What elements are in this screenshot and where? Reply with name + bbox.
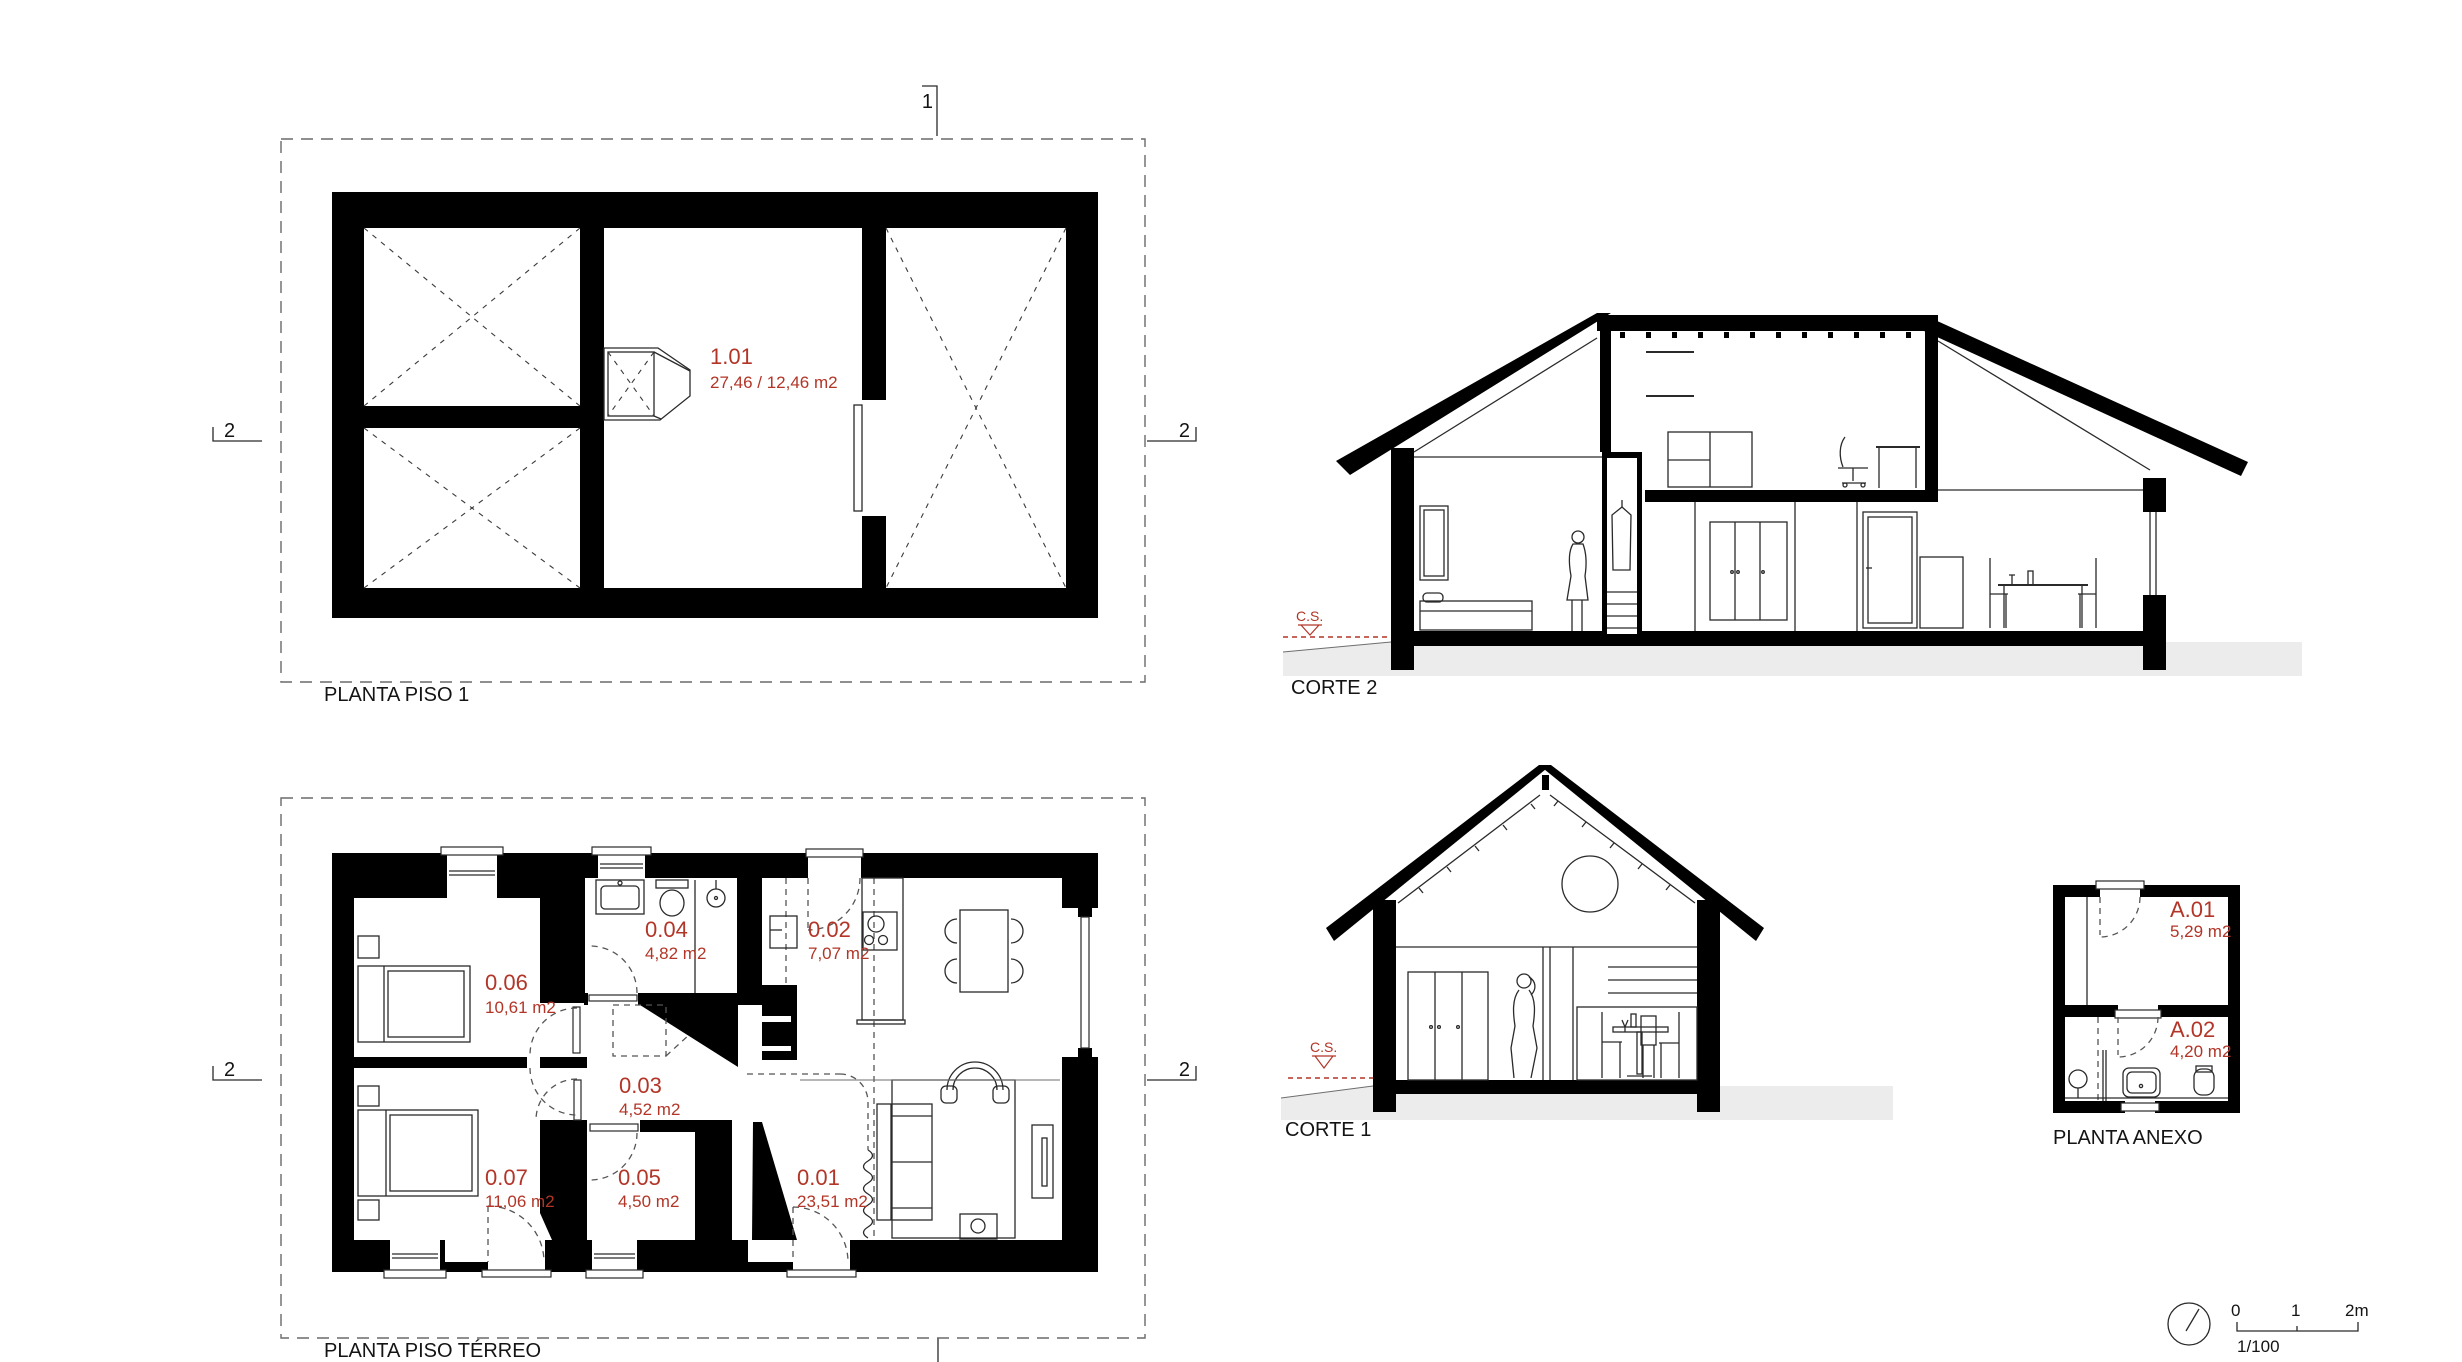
round-window bbox=[1562, 856, 1618, 912]
scale-two: 2m bbox=[2345, 1301, 2369, 1320]
room-006-number: 0.06 bbox=[485, 970, 528, 995]
sofa bbox=[877, 1104, 932, 1220]
cut2-left-bottom-label: 2 bbox=[224, 1059, 235, 1081]
corte2-structure bbox=[1336, 313, 2248, 670]
anexo-title: PLANTA ANEXO bbox=[2053, 1127, 2203, 1149]
piso1-walls bbox=[332, 192, 1098, 618]
living-room bbox=[800, 1062, 1060, 1239]
piso1-room-number: 1.01 bbox=[710, 344, 753, 369]
low-cabinet bbox=[1920, 557, 1963, 628]
bed-006 bbox=[358, 966, 470, 1042]
corte2-ground-floor bbox=[1420, 500, 2156, 631]
piso1-void-x-upper-left bbox=[364, 228, 580, 406]
room-002-number: 0.02 bbox=[808, 917, 851, 942]
room-a01-number: A.01 bbox=[2170, 897, 2215, 922]
wardrobe-section bbox=[1710, 522, 1787, 620]
plan-anexo: A.01 5,29 m2 A.02 4,20 m2 PLANTA ANEXO bbox=[2053, 881, 2240, 1149]
door-section bbox=[1863, 512, 1917, 628]
room-001-area: 23,51 m2 bbox=[797, 1192, 868, 1211]
dining-table bbox=[945, 910, 1023, 992]
anexo-inner-frame bbox=[2115, 1010, 2161, 1018]
north-indicator-icon bbox=[2168, 1303, 2210, 1345]
person-figure bbox=[1511, 974, 1537, 1078]
anexo-window-frame bbox=[2121, 1103, 2159, 1111]
section-corte1: C.S. CORTE 1 bbox=[1281, 765, 1893, 1141]
corte1-structure bbox=[1326, 765, 1764, 1112]
room-a02-number: A.02 bbox=[2170, 1017, 2215, 1042]
room-007-number: 0.07 bbox=[485, 1165, 528, 1190]
terreo-title: PLANTA PISO TÉRREO bbox=[324, 1339, 541, 1362]
room-a01-area: 5,29 m2 bbox=[2170, 922, 2231, 941]
piso1-void-x-right bbox=[886, 228, 1066, 588]
room-005-area: 4,50 m2 bbox=[618, 1192, 679, 1211]
corte2-attic bbox=[1646, 352, 1920, 488]
corte2-level-marker: C.S. bbox=[1283, 608, 1391, 637]
corte1-interior bbox=[1408, 947, 1697, 1080]
cut2-right-top-label: 2 bbox=[1179, 420, 1190, 442]
partition-lines bbox=[1543, 947, 1573, 1080]
piso1-title: PLANTA PISO 1 bbox=[324, 684, 469, 706]
attic-desk bbox=[1876, 447, 1920, 488]
nightstand bbox=[358, 1200, 379, 1220]
scale-zero: 0 bbox=[2231, 1301, 2240, 1320]
room-006-area: 10,61 m2 bbox=[485, 998, 556, 1017]
wardrobe-front bbox=[1408, 972, 1488, 1080]
tv-console bbox=[1032, 1125, 1053, 1198]
piso1-void-x-lower-left bbox=[364, 428, 580, 588]
anexo-entry-frame bbox=[2096, 881, 2144, 889]
piso1-dormer bbox=[604, 348, 690, 420]
scalebar: 0 1 2m 1/100 bbox=[2168, 1301, 2369, 1356]
piso1-room-area: 27,46 / 12,46 m2 bbox=[710, 373, 838, 392]
anexo-door-arcs bbox=[2098, 897, 2158, 1101]
cut2-left-bottom-marker bbox=[213, 1066, 262, 1080]
right-window-glazing bbox=[2150, 512, 2156, 595]
corte2-title: CORTE 2 bbox=[1291, 677, 1377, 699]
corte2-niche bbox=[1607, 458, 1637, 634]
cut2-left-top-label: 2 bbox=[224, 420, 235, 442]
room-003-area: 4,52 m2 bbox=[619, 1100, 680, 1119]
cut2-left-top-marker bbox=[213, 427, 262, 441]
person-figure bbox=[1567, 531, 1588, 631]
bed-section bbox=[1420, 593, 1532, 630]
room-003-number: 0.03 bbox=[619, 1073, 662, 1098]
cut1-top-marker-label: 1 bbox=[922, 91, 933, 113]
section-corte2: C.S. CORTE 2 bbox=[1283, 313, 2302, 699]
side-table-lamp bbox=[960, 1214, 997, 1239]
drawing-sheet: 1 2 2 2 2 1.01 27,46 / 12,46 m2 PLANTA P… bbox=[0, 0, 2462, 1362]
plan-terreo: 0.06 10,61 m2 0.04 4,82 m2 0.02 7,07 m2 … bbox=[281, 798, 1145, 1362]
room-007-area: 11,06 m2 bbox=[485, 1192, 555, 1211]
scale-bar-line bbox=[2237, 1322, 2358, 1331]
corte1-title: CORTE 1 bbox=[1285, 1119, 1371, 1141]
shelves bbox=[1646, 352, 1694, 396]
bedroom-window bbox=[1420, 506, 1448, 580]
dining-set-front bbox=[1602, 1012, 1679, 1078]
scale-one: 1 bbox=[2291, 1301, 2300, 1320]
dining-set-section bbox=[1990, 558, 2096, 628]
room-005-number: 0.05 bbox=[618, 1165, 661, 1190]
nightstand bbox=[358, 1086, 379, 1106]
corte2-rafter-ticks bbox=[1620, 332, 1911, 338]
cs-label: C.S. bbox=[1310, 1039, 1337, 1055]
plan-piso1: 1.01 27,46 / 12,46 m2 PLANTA PISO 1 bbox=[281, 139, 1145, 706]
office-chair bbox=[1838, 437, 1868, 487]
corte1-level-marker: C.S. bbox=[1288, 1039, 1373, 1078]
scale-ratio: 1/100 bbox=[2237, 1337, 2280, 1356]
shelf-lines bbox=[1608, 967, 1697, 993]
room-001-number: 0.01 bbox=[797, 1165, 840, 1190]
room-004-number: 0.04 bbox=[645, 917, 688, 942]
attic-cabinet bbox=[1668, 432, 1752, 487]
room-004-area: 4,82 m2 bbox=[645, 944, 706, 963]
room-a02-area: 4,20 m2 bbox=[2170, 1042, 2231, 1061]
piso1-door-panel bbox=[854, 405, 862, 511]
nightstand bbox=[358, 936, 379, 958]
bed-007 bbox=[358, 1110, 478, 1196]
cut2-right-bottom-label: 2 bbox=[1179, 1059, 1190, 1081]
cs-label: C.S. bbox=[1296, 608, 1323, 624]
room-002-area: 7,07 m2 bbox=[808, 944, 869, 963]
armchair bbox=[941, 1062, 1009, 1103]
